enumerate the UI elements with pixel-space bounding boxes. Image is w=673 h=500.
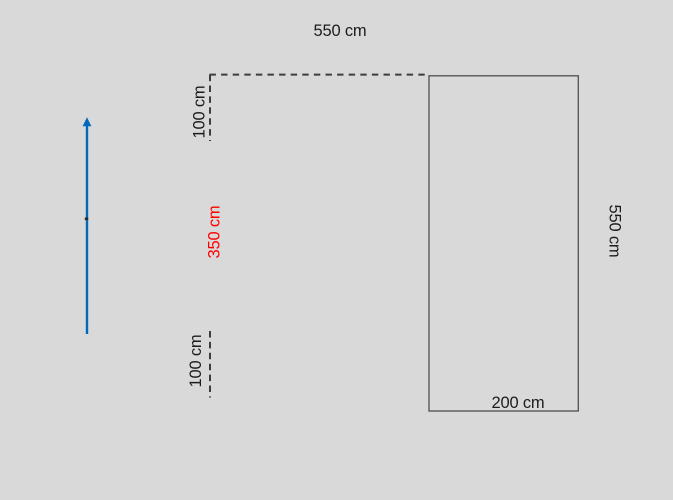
svg-text:550 cm: 550 cm [314,22,367,40]
svg-text:100 cm: 100 cm [191,86,209,139]
svg-text:550 cm: 550 cm [606,205,624,258]
svg-text:100 cm: 100 cm [187,335,205,388]
svg-text:350 cm: 350 cm [206,206,224,259]
svg-text:200 cm: 200 cm [492,394,545,412]
